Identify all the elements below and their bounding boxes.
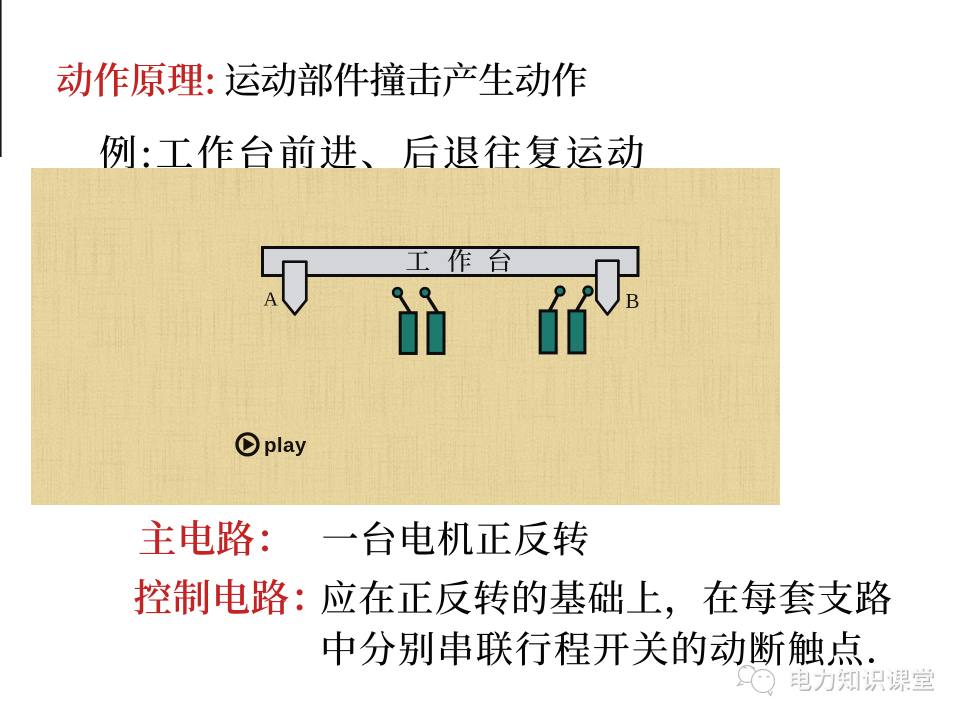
svg-text:play: play <box>264 434 307 457</box>
svg-text:B: B <box>626 289 640 313</box>
svg-text:A: A <box>264 289 279 311</box>
